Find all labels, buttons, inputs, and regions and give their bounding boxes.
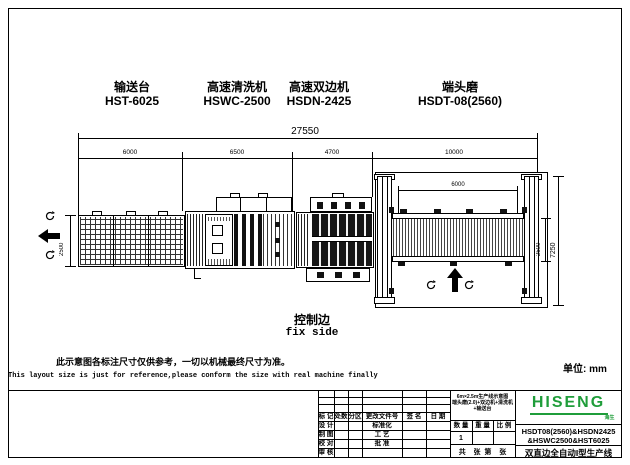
approval-cell: 审 核 xyxy=(318,449,334,456)
control-edge-cn: 控制边 xyxy=(262,313,362,327)
qty-header-cell: 重 量 xyxy=(472,422,493,429)
grinder-left-column xyxy=(377,176,392,304)
rev-header-cell: 签 名 xyxy=(402,413,426,420)
rotate-icon xyxy=(44,248,56,266)
edger-detail xyxy=(317,272,324,278)
conveyor-bump xyxy=(92,211,102,216)
dim-extension-line xyxy=(78,133,79,215)
washer-nub xyxy=(230,193,240,198)
grinder-belt-width-label: 2500 xyxy=(536,226,543,256)
grinder-total-width-label: 7250 xyxy=(549,222,558,258)
drawing-title-cell: 6m×2.5m生产线示意图 端头磨(2.0)+双边机+清洗机+输送台 xyxy=(451,394,514,412)
washer-foot xyxy=(194,269,201,279)
edger-infeed xyxy=(298,214,310,266)
note-cn: 此示意图各标注尺寸仅供参考，一切以机械最终尺寸为准。 xyxy=(8,357,338,368)
washer-cabinet-strip xyxy=(208,259,231,265)
dim-extension-line xyxy=(537,133,538,175)
edger-center-rail xyxy=(312,236,372,242)
titleblock-line xyxy=(515,445,622,446)
dim-tick xyxy=(553,305,564,306)
grinder-belt-surface xyxy=(393,219,523,256)
rev-header-cell: 分区 xyxy=(348,413,362,420)
dim-tick xyxy=(541,218,551,219)
washer-infeed-rollers xyxy=(187,214,204,266)
grinder-belt-foot xyxy=(450,262,457,266)
dim-segment-label: 6000 xyxy=(108,149,152,156)
dim-total-label: 27550 xyxy=(270,126,340,138)
machine-model: HSDN-2425 xyxy=(269,94,369,108)
dim-segment-label: 4700 xyxy=(310,149,354,156)
dim-extension-line xyxy=(292,152,293,212)
washer-top-divider xyxy=(266,197,267,212)
qty-header-cell: 数 量 xyxy=(450,422,472,429)
washer-detail xyxy=(275,222,280,227)
dim-tick xyxy=(553,176,564,177)
machine-label-conveyor: 输送台 HST-6025 xyxy=(82,80,182,108)
machine-label-edger: 高速双边机 HSDN-2425 xyxy=(269,80,369,108)
machine-model: HSDT-08(2560) xyxy=(402,94,518,108)
titleblock-line xyxy=(318,448,450,449)
rotate-icon xyxy=(44,209,56,227)
washer-cabinet-strip xyxy=(208,217,231,221)
control-edge-label: 控制边 fix side xyxy=(262,313,362,340)
dim-line-segments xyxy=(78,158,537,159)
edger-nub xyxy=(332,193,344,198)
titleblock-line xyxy=(318,404,450,405)
machine-label-grinder: 端头磨 HSDT-08(2560) xyxy=(402,80,518,108)
washer-window xyxy=(212,243,223,254)
model-cell: HSDT08(2560)&HSDN2425 &HSWC2500&HST6025 xyxy=(515,427,622,445)
unit-label: 单位: mm xyxy=(563,364,607,376)
dim-tick xyxy=(65,266,76,267)
grinder-column-line xyxy=(529,177,530,303)
washer-window xyxy=(212,225,223,236)
machine-name: 高速双边机 xyxy=(269,80,369,94)
washer-brush-section xyxy=(234,214,262,266)
edger-detail xyxy=(359,202,365,209)
titleblock-line xyxy=(450,420,515,421)
washer-top-assembly xyxy=(216,197,292,212)
titleblock-line xyxy=(318,397,450,398)
dim-tick xyxy=(517,186,518,213)
edger-detail xyxy=(353,272,360,278)
approval-cell: 批 准 xyxy=(362,440,402,447)
dim-extension-line xyxy=(182,152,183,211)
rev-header-cell: 标 记 xyxy=(318,413,334,420)
titleblock-top-line xyxy=(8,390,622,391)
grinder-column-cap xyxy=(521,297,542,304)
edger-spindle-block xyxy=(312,214,372,266)
washer-nub xyxy=(258,193,268,198)
flow-arrow-left-icon xyxy=(38,229,60,248)
rotate-icon xyxy=(425,278,437,296)
grinder-column-cap xyxy=(374,297,395,304)
product-name-cell: 双直边全自动I型生产线 xyxy=(515,448,622,458)
approval-cell: 制 图 xyxy=(318,431,334,438)
approval-cell: 校 对 xyxy=(318,440,334,447)
control-edge-en: fix side xyxy=(262,327,362,340)
edger-top-assembly xyxy=(310,197,372,212)
dim-extension-line xyxy=(372,152,373,197)
machine-name: 端头磨 xyxy=(402,80,518,94)
model-line1: HSDT08(2560)&HSDN2425 xyxy=(515,427,622,436)
drawing-sheet: 输送台 HST-6025 高速清洗机 HSWC-2500 高速双边机 HSDN-… xyxy=(0,0,630,465)
grinder-clamp xyxy=(389,288,394,294)
rev-header-cell: 更改文件号 xyxy=(362,413,402,420)
edger-detail xyxy=(345,202,351,209)
titleblock-line xyxy=(450,431,515,432)
washer-cabinet xyxy=(205,214,233,266)
edger-bottom-assembly xyxy=(306,268,370,282)
dim-tick xyxy=(541,261,551,262)
logo-subtext: 海生 xyxy=(523,415,615,421)
rotate-icon xyxy=(463,278,475,296)
grinder-column-line xyxy=(382,177,383,303)
titleblock-line xyxy=(515,424,622,425)
sheet-count-cell: 共 张 第 张 xyxy=(450,448,515,457)
qty-header-cell: 比 例 xyxy=(493,422,515,429)
conveyor-divider xyxy=(148,216,149,266)
dim-line-total xyxy=(78,138,537,139)
conveyor-width-label: 2500 xyxy=(59,226,66,256)
flow-arrow-up-icon xyxy=(447,268,463,297)
grinder-inner-dim-label: 6000 xyxy=(436,182,480,189)
conveyor-bump xyxy=(158,211,168,216)
conveyor-bump xyxy=(126,211,136,216)
grinder-inner-dim-line xyxy=(398,190,518,191)
conveyor-width-dim-line xyxy=(70,215,71,267)
approval-cell: 标准化 xyxy=(362,422,402,429)
grinder-belt-foot xyxy=(398,262,405,266)
drawing-title-line2: 端头磨(2.0)+双边机+清洗机+输送台 xyxy=(451,400,514,412)
edger-detail xyxy=(335,272,342,278)
grinder-belt-width-dim-line xyxy=(545,218,546,262)
titleblock-line xyxy=(450,444,515,445)
dim-segment-label: 10000 xyxy=(432,149,476,156)
dim-segment-label: 6500 xyxy=(215,149,259,156)
logo-block: HISENG 海生 xyxy=(515,394,622,421)
machine-model: HST-6025 xyxy=(82,94,182,108)
washer-detail xyxy=(275,252,280,257)
hiseng-logo: HISENG xyxy=(515,394,622,412)
model-line2: &HSWC2500&HST6025 xyxy=(515,436,622,445)
conveyor-divider xyxy=(113,216,114,266)
washer-top-divider xyxy=(240,197,241,212)
rev-header-cell: 处数 xyxy=(334,413,348,420)
conveyor-roller-grid xyxy=(80,217,183,265)
qty-value-cell: 1 xyxy=(450,434,472,443)
approval-cell: 设 计 xyxy=(318,422,334,429)
edger-detail xyxy=(331,202,337,209)
edger-detail xyxy=(317,202,323,209)
dim-tick xyxy=(65,215,76,216)
machine-name: 输送台 xyxy=(82,80,182,94)
grinder-belt-foot xyxy=(505,262,512,266)
note-en: This layout size is just for reference,p… xyxy=(8,372,338,380)
rev-header-cell: 日 期 xyxy=(426,413,450,420)
grinder-total-width-dim-line xyxy=(558,176,559,306)
grinder-clamp xyxy=(522,288,527,294)
conveyor-body xyxy=(78,215,185,267)
approval-cell: 工 艺 xyxy=(362,431,402,438)
washer-detail xyxy=(275,238,280,243)
dim-tick xyxy=(398,186,399,213)
grinder-column-line xyxy=(534,177,535,303)
grinder-column-line xyxy=(387,177,388,303)
